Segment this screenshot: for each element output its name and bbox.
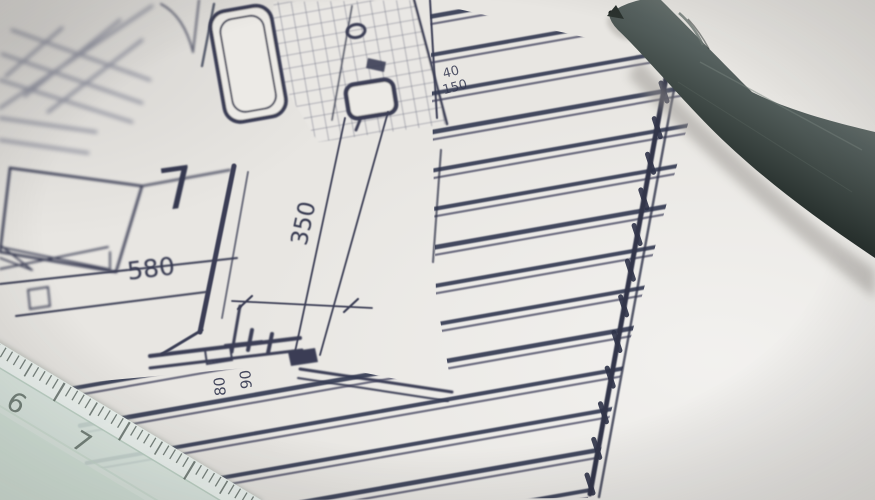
- vignette-overlay: [0, 0, 875, 500]
- scene-photo: 7 580 350 40 150 80 90 6 7: [0, 0, 875, 500]
- floor-plan-photo: 7 580 350 40 150 80 90 6 7: [0, 0, 875, 500]
